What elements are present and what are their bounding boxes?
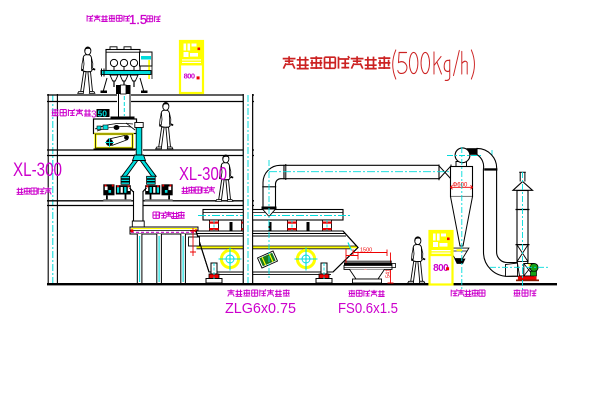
- svg-text:XL-300: XL-300: [13, 160, 62, 181]
- svg-text:541: 541: [386, 269, 392, 278]
- svg-text:3: 3: [91, 110, 97, 121]
- svg-text:FS0.6x1.5: FS0.6x1.5: [338, 300, 398, 317]
- svg-text:XL-300: XL-300: [179, 163, 227, 184]
- svg-text:50: 50: [98, 108, 108, 118]
- svg-text:1.5: 1.5: [129, 12, 147, 27]
- svg-text:800: 800: [184, 71, 195, 80]
- svg-text:1500: 1500: [360, 248, 372, 254]
- svg-text:ZLG6x0.75: ZLG6x0.75: [225, 300, 296, 317]
